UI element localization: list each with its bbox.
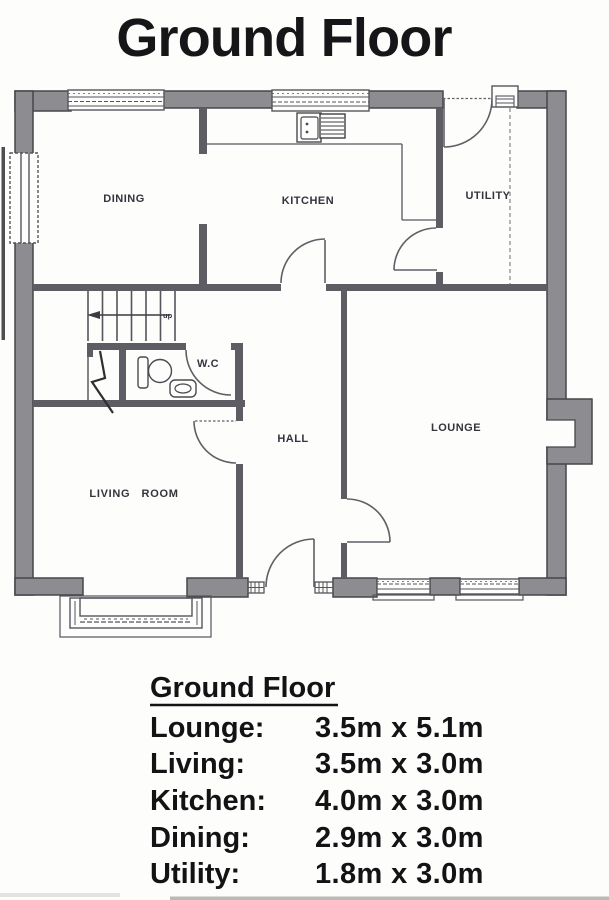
svg-text:Ground Floor: Ground Floor [116,8,452,68]
svg-text:Utility:: Utility: [150,858,240,890]
svg-text:Lounge:: Lounge: [150,712,264,744]
svg-text:KITCHEN: KITCHEN [282,195,334,207]
svg-text:2.9m x 3.0m: 2.9m x 3.0m [315,822,484,854]
svg-text:LIVING ROOM: LIVING ROOM [89,488,178,500]
svg-text:Ground Floor: Ground Floor [150,672,335,704]
svg-text:Living:: Living: [150,748,245,780]
svg-text:LOUNGE: LOUNGE [431,422,481,434]
svg-text:UTILITY: UTILITY [465,190,510,202]
svg-text:3.5m x 5.1m: 3.5m x 5.1m [315,712,484,744]
svg-text:Kitchen:: Kitchen: [150,785,266,817]
svg-text:1.8m x 3.0m: 1.8m x 3.0m [315,858,484,890]
svg-text:up: up [163,311,173,320]
svg-text:3.5m x 3.0m: 3.5m x 3.0m [315,748,484,780]
svg-text:4.0m x 3.0m: 4.0m x 3.0m [315,785,484,817]
svg-text:DINING: DINING [103,193,145,205]
svg-text:HALL: HALL [277,433,308,445]
svg-text:W.C: W.C [197,358,219,370]
svg-text:Dining:: Dining: [150,822,250,854]
